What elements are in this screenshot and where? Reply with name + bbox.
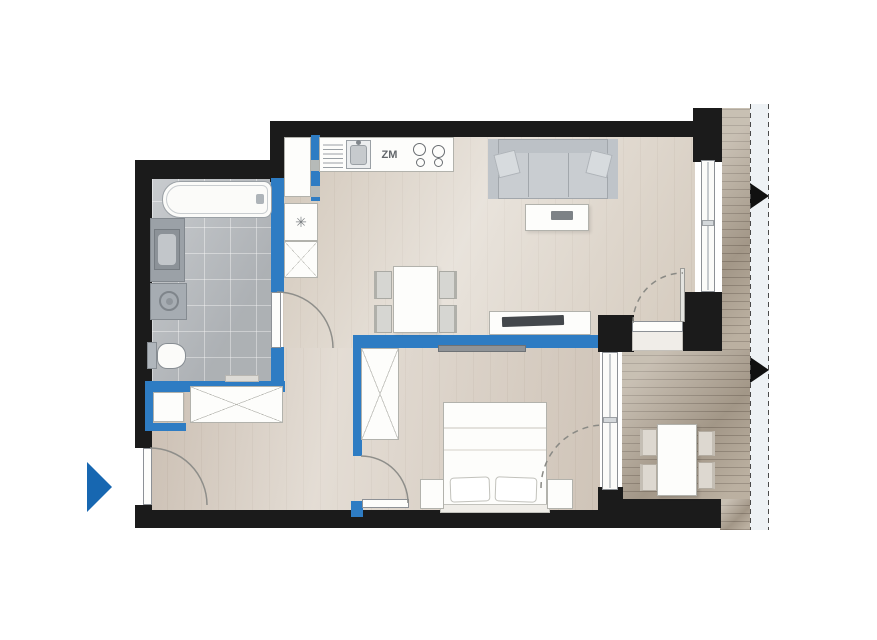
balcony-chair (640, 464, 657, 491)
washing-machine-drum-center (166, 298, 173, 305)
tall-cabinet (284, 137, 311, 197)
wall-top-main (270, 121, 703, 137)
hallway-cabinet (153, 392, 184, 422)
balcony-deck-corner (720, 499, 750, 530)
bed-duvet-fold (444, 449, 546, 451)
balcony-table (657, 424, 697, 496)
nightstand (420, 479, 444, 509)
railing-marker-icon (750, 183, 769, 209)
balcony-deck-strip (722, 108, 750, 350)
kitchen-x-cabinet (284, 241, 318, 278)
bed-headboard (440, 504, 550, 513)
entrance-arrow-icon (87, 462, 112, 512)
living-room-window-transom (702, 220, 714, 226)
dining-chair (439, 271, 457, 299)
kitchen-sink-basin (350, 145, 367, 165)
wall-top-right-corner (693, 108, 722, 162)
living-room-window-mullion (707, 162, 709, 290)
snowflake-icon: ✳ (291, 212, 311, 232)
wall-balcony-door-left (598, 315, 634, 352)
bedroom-door-leaf (362, 499, 409, 508)
wall-bathroom-top (135, 160, 272, 179)
bath-mat (225, 375, 259, 382)
balcony-railing (750, 104, 769, 530)
entrance-door-leaf (143, 448, 152, 505)
dining-chair (439, 305, 457, 333)
coffee-table-tray (551, 211, 573, 220)
living-balcony-door-leaf (632, 321, 683, 332)
toilet-bowl (157, 343, 186, 369)
partition-closet-bottom (145, 423, 186, 431)
balcony-chair (698, 431, 715, 456)
bathtub-faucet-icon (256, 194, 264, 204)
wall-kitchen-connector (270, 121, 285, 182)
dining-chair (374, 271, 392, 299)
washbasin-bowl (158, 234, 176, 265)
balcony-chair (640, 429, 657, 456)
stove-burner (434, 158, 443, 167)
bed-duvet-fold (444, 427, 546, 429)
stove-burner (413, 143, 426, 156)
dishwasher-label: ZM (371, 147, 408, 163)
sofa-cushion-divider (568, 153, 569, 197)
nightstand (547, 479, 573, 509)
hallway-wardrobe (190, 386, 283, 423)
stove-burner (416, 158, 425, 167)
wall-shelf (438, 345, 526, 352)
kitchen-faucet-icon (356, 140, 361, 145)
partition-bathroom-right-lower (271, 347, 284, 385)
bedroom-balcony-door-transom (603, 417, 617, 423)
partition-frame-mark (311, 186, 320, 197)
toilet-tank (147, 342, 157, 369)
floorplan-canvas: { "plan": { "labels": { "dishwasher": "Z… (0, 0, 877, 640)
living-balcony-door-open-leaf (680, 268, 685, 322)
balcony-chair (698, 462, 715, 489)
wall-balcony-bottom (598, 499, 721, 528)
partition-bathroom-right-upper (271, 178, 284, 292)
dining-chair (374, 305, 392, 333)
bathroom-door-leaf (271, 292, 281, 348)
living-balcony-door-sill (632, 330, 683, 351)
bedroom-wardrobe (361, 348, 399, 440)
stove-burner (432, 145, 445, 158)
bed-pillow (450, 476, 491, 502)
dining-table (393, 266, 438, 333)
sink-drainer (323, 142, 343, 168)
sofa-cushion-divider (528, 153, 529, 197)
bed-pillow (495, 476, 538, 502)
railing-marker-icon (750, 357, 769, 383)
wall-right-mid (683, 292, 722, 351)
